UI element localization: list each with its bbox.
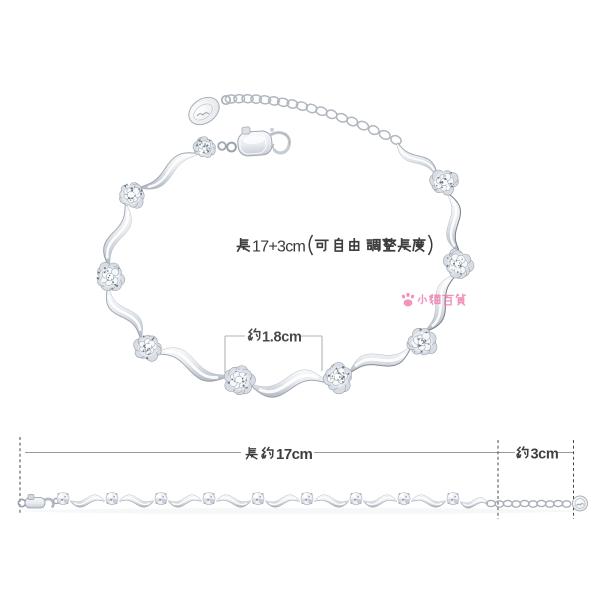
svg-text:17+3cm: 17+3cm <box>252 239 306 256</box>
svg-text:3cm: 3cm <box>531 447 559 463</box>
svg-text:17cm: 17cm <box>276 446 313 463</box>
svg-text:1.8cm: 1.8cm <box>262 330 302 346</box>
